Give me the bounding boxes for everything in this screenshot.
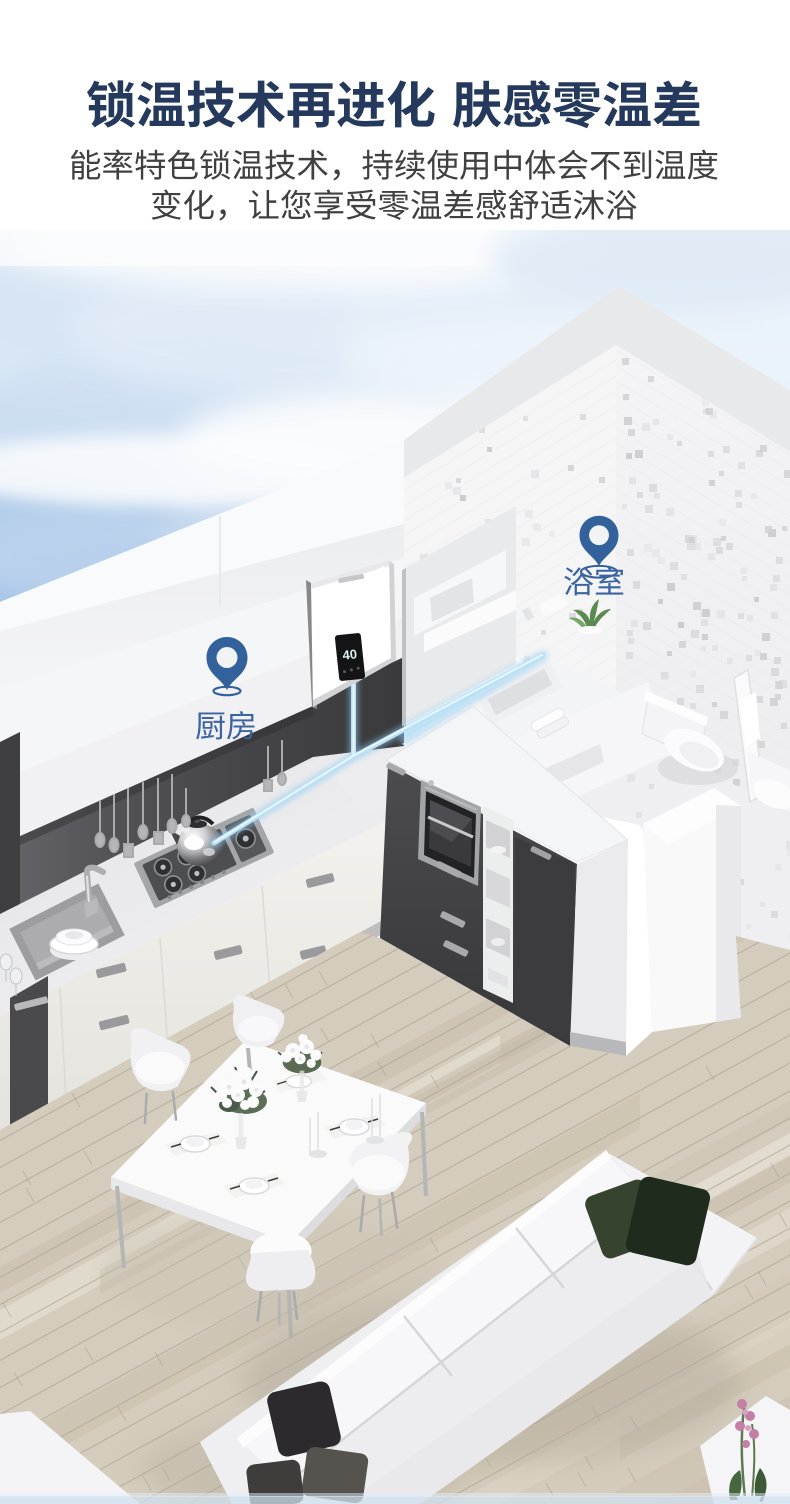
svg-text:40: 40 xyxy=(342,646,358,662)
